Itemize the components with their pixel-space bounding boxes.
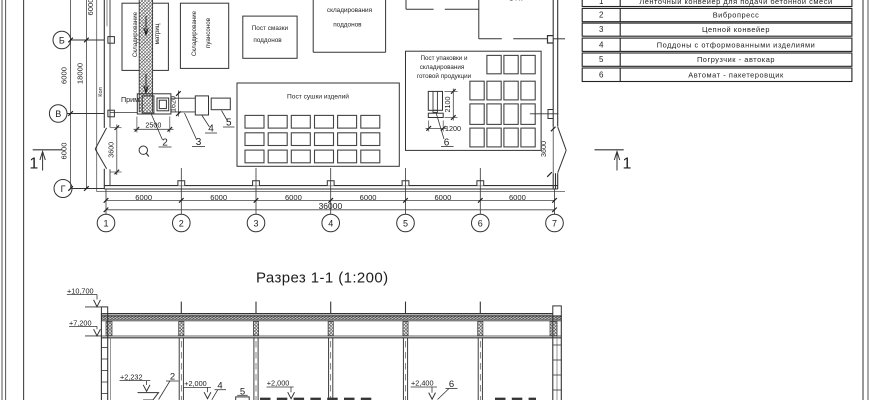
svg-text:7: 7	[552, 218, 557, 228]
svg-text:Б: Б	[59, 35, 65, 45]
svg-text:4: 4	[208, 124, 214, 135]
svg-text:3: 3	[253, 218, 258, 228]
svg-text:Прим: Прим	[121, 95, 139, 104]
svg-text:6000: 6000	[434, 193, 451, 202]
svg-text:складирования: складирования	[327, 7, 373, 14]
svg-text:6000: 6000	[285, 193, 302, 202]
svg-text:1620: 1620	[168, 96, 177, 112]
svg-text:Складирование: Складирование	[132, 11, 139, 57]
svg-text:1: 1	[599, 0, 604, 6]
svg-text:Поддоны с отформованными издел: Поддоны с отформованными изделиями	[657, 40, 816, 49]
svg-text:ОТК: ОТК	[509, 0, 524, 3]
svg-text:Ленточный конвейер для подачи: Ленточный конвейер для подачи бетонной с…	[639, 0, 832, 6]
svg-text:2500: 2500	[145, 120, 161, 129]
svg-text:3600: 3600	[107, 142, 116, 158]
svg-text:4: 4	[328, 218, 333, 228]
svg-text:готовой продукции: готовой продукции	[417, 72, 472, 80]
svg-text:2: 2	[599, 11, 604, 20]
svg-text:2: 2	[179, 218, 184, 228]
svg-text:Погрузчик - автокар: Погрузчик - автокар	[697, 55, 775, 64]
svg-text:Кол: Кол	[98, 87, 104, 96]
svg-text:1200: 1200	[445, 124, 461, 133]
svg-text:3600: 3600	[539, 141, 548, 157]
svg-text:6000: 6000	[360, 193, 377, 202]
svg-text:Пост смазки: Пост смазки	[252, 25, 289, 32]
svg-text:18000: 18000	[76, 63, 85, 84]
svg-text:1: 1	[103, 218, 108, 228]
svg-text:6000: 6000	[509, 193, 526, 202]
svg-text:4: 4	[599, 40, 604, 49]
svg-text:Г: Г	[61, 184, 66, 194]
svg-text:Цепной конвейер: Цепной конвейер	[702, 25, 770, 34]
svg-text:3: 3	[599, 25, 604, 34]
svg-text:+2,000: +2,000	[184, 379, 207, 388]
svg-text:Пост сушки изделий: Пост сушки изделий	[287, 93, 349, 101]
svg-text:6000: 6000	[210, 193, 227, 202]
svg-text:В: В	[55, 109, 61, 119]
svg-text:1: 1	[623, 155, 632, 172]
svg-text:2100: 2100	[443, 97, 452, 113]
svg-text:пуансонов: пуансонов	[205, 17, 212, 48]
svg-text:Автомат - пакетеровщик: Автомат - пакетеровщик	[688, 70, 784, 79]
svg-text:6000: 6000	[135, 193, 152, 202]
svg-text:6000: 6000	[60, 67, 69, 84]
svg-text:2: 2	[162, 138, 168, 149]
svg-text:36000: 36000	[319, 201, 343, 211]
svg-text:5: 5	[599, 55, 604, 64]
svg-text:+2,232: +2,232	[120, 372, 143, 381]
svg-text:Пост упаковки и: Пост упаковки и	[420, 55, 468, 62]
svg-text:5: 5	[403, 218, 408, 228]
svg-text:+10,700: +10,700	[67, 286, 94, 295]
svg-text:Складирование: Складирование	[191, 10, 198, 56]
svg-text:складирования: складирования	[420, 64, 465, 71]
svg-text:3: 3	[196, 137, 202, 148]
svg-text:+2,400: +2,400	[411, 379, 434, 388]
svg-text:6000: 6000	[86, 0, 95, 15]
svg-text:+2,000: +2,000	[267, 379, 290, 388]
svg-text:5: 5	[226, 118, 232, 129]
svg-text:поддонов: поддонов	[253, 37, 282, 44]
svg-text:6: 6	[478, 218, 483, 228]
svg-text:Разрез 1-1 (1:200): Разрез 1-1 (1:200)	[256, 270, 389, 287]
svg-text:матриц: матриц	[154, 23, 161, 44]
svg-text:Вибропресс: Вибропресс	[713, 11, 760, 20]
svg-text:6000: 6000	[60, 143, 69, 160]
svg-text:6: 6	[444, 137, 450, 148]
svg-text:1: 1	[29, 155, 38, 172]
svg-text:поддонов: поддонов	[333, 22, 362, 29]
svg-text:6: 6	[599, 70, 604, 79]
